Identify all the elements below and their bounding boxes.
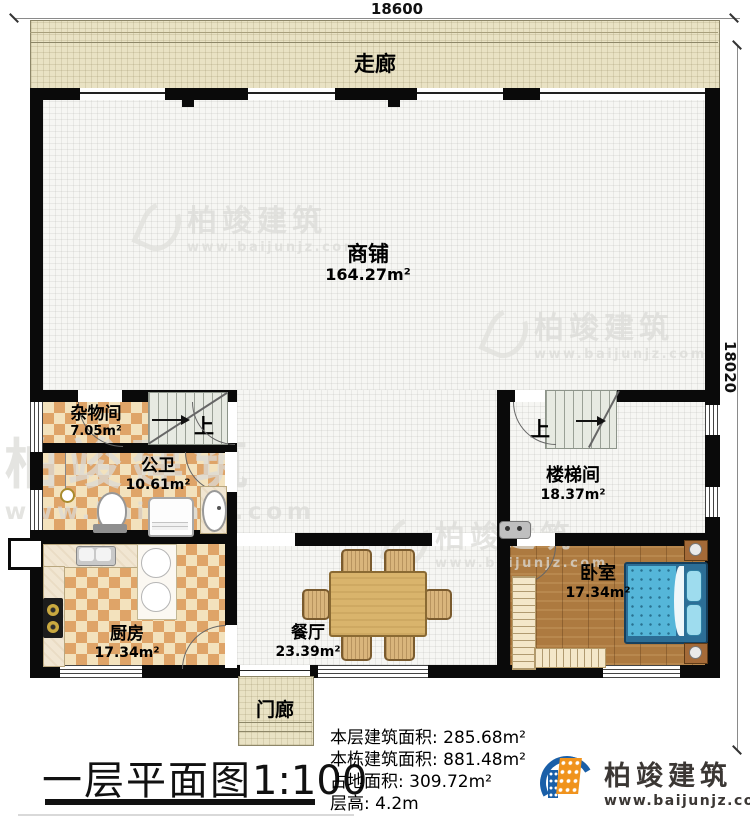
dining-area: 23.39m² xyxy=(248,644,368,660)
storefront-opening xyxy=(248,88,335,100)
stove-burner xyxy=(47,604,59,616)
room-label-storage: 杂物间 7.05m² xyxy=(38,405,154,439)
plan-title-text: 一层平面图 xyxy=(42,748,252,806)
dining-name: 餐厅 xyxy=(248,624,368,644)
washing-machine-icon xyxy=(148,497,194,537)
shop-floor-lower xyxy=(237,390,497,533)
lamp-icon xyxy=(60,488,75,503)
storefront-opening xyxy=(80,88,165,100)
window xyxy=(705,487,720,517)
water-heater-icon xyxy=(499,521,531,539)
room-label-dining: 餐厅 23.39m² xyxy=(248,624,368,660)
room-label-stairwell: 楼梯间 18.37m² xyxy=(513,466,633,503)
stats-line: 本层建筑面积: 285.68m² xyxy=(330,727,526,749)
room-label-porch: 门廊 xyxy=(233,700,317,722)
wall-shop-dining xyxy=(295,533,432,546)
faucet-dot xyxy=(217,506,221,510)
watermark-logo-icon xyxy=(0,416,8,531)
building-stats: 本层建筑面积: 285.68m² 本栋建筑面积: 881.48m² 占地面积: … xyxy=(330,727,526,815)
chimney xyxy=(8,538,44,570)
wall-stairwell-top xyxy=(497,390,515,402)
room-label-bathroom: 公卫 10.61m² xyxy=(98,457,218,493)
bathroom-area: 10.61m² xyxy=(98,477,218,493)
round-basin xyxy=(141,548,171,578)
kitchen-door-opening xyxy=(225,625,237,668)
brand-name: 柏竣建筑 xyxy=(604,754,750,793)
shop-name: 商铺 xyxy=(298,242,438,266)
storage-door-opening xyxy=(78,390,122,402)
room-label-bedroom: 卧室 17.34m² xyxy=(538,564,658,601)
window xyxy=(705,405,720,435)
storage-area: 7.05m² xyxy=(38,425,154,440)
kitchen-name: 厨房 xyxy=(67,625,187,645)
title-underline-thick xyxy=(45,799,315,805)
stats-line: 占地面积: 309.72m² xyxy=(330,771,526,793)
storefront-opening xyxy=(417,88,503,100)
window xyxy=(60,665,142,678)
pillow-icon xyxy=(686,604,702,636)
stair-direction-arrow xyxy=(152,419,182,421)
wardrobe-icon xyxy=(512,576,536,670)
dimension-line-top xyxy=(14,18,740,19)
porch-door-line xyxy=(240,670,310,671)
corridor-inner-line xyxy=(30,42,718,43)
kitchen-sink-basin xyxy=(79,548,94,561)
stairwell-name: 楼梯间 xyxy=(513,466,633,487)
bathroom-name: 公卫 xyxy=(98,457,218,477)
corridor-name: 走廊 xyxy=(340,52,410,76)
dimension-width-label: 18600 xyxy=(352,0,442,18)
kitchen-sink-basin xyxy=(96,548,111,561)
washing-machine-panel xyxy=(152,522,188,530)
chair-icon xyxy=(302,589,330,620)
nightstand-lamp xyxy=(689,543,702,556)
wall-left xyxy=(30,88,43,678)
porch-step-line xyxy=(238,731,312,732)
plan-title: 一层平面图1:100 xyxy=(42,748,367,806)
storage-name: 杂物间 xyxy=(38,405,154,425)
stove-burner xyxy=(47,621,59,633)
corridor-inner-line xyxy=(30,32,718,33)
stair-direction-arrowhead xyxy=(181,415,190,425)
dimension-line-right xyxy=(737,45,738,750)
wardrobe-icon xyxy=(534,648,606,668)
wall-tab xyxy=(388,100,400,107)
window xyxy=(603,665,680,678)
brand-url: www.baijunjz.com xyxy=(604,793,750,809)
room-label-corridor: 走廊 xyxy=(340,52,410,76)
lamp-cord xyxy=(65,453,66,489)
sink-icon xyxy=(202,490,227,532)
stair-direction-arrow xyxy=(576,420,598,422)
stats-line: 层高: 4.2m xyxy=(330,793,526,815)
round-basin xyxy=(141,582,171,612)
wall-tab xyxy=(182,100,194,107)
storefront-glass-line xyxy=(417,92,503,94)
pillow-icon xyxy=(686,570,702,602)
stats-line: 本栋建筑面积: 881.48m² xyxy=(330,749,526,771)
window xyxy=(318,665,428,678)
shop-area: 164.27m² xyxy=(298,266,438,284)
bedroom-name: 卧室 xyxy=(538,564,658,585)
dimension-height-label: 18020 xyxy=(721,337,739,397)
toilet-tank xyxy=(93,524,127,533)
brand-logo: 柏竣建筑 www.baijunjz.com xyxy=(538,752,750,810)
logo-building-shape xyxy=(556,758,582,794)
porch-step-line xyxy=(238,722,312,723)
kitchen-area: 17.34m² xyxy=(67,645,187,661)
floor-plan-canvas: 18600 18020 走廊 柏竣建筑 www.baijunjz.com 柏竣建… xyxy=(0,0,750,829)
water-heater-knob xyxy=(505,526,510,531)
title-underline-thin xyxy=(18,814,354,816)
storefront-glass-line xyxy=(248,92,335,94)
storefront-opening xyxy=(540,88,705,100)
storefront-glass-line xyxy=(80,92,165,94)
water-heater-knob xyxy=(517,526,522,531)
storefront-glass-line xyxy=(540,92,705,94)
room-label-kitchen: 厨房 17.34m² xyxy=(67,625,187,661)
wall-stairwell-top xyxy=(615,390,720,402)
brand-logo-icon xyxy=(538,752,596,810)
bedroom-area: 17.34m² xyxy=(538,585,658,601)
room-label-shop: 商铺 164.27m² xyxy=(298,242,438,285)
stair-direction-arrowhead xyxy=(597,416,606,426)
porch-name: 门廊 xyxy=(233,700,317,722)
nightstand-lamp xyxy=(689,646,702,659)
bed-sheet-fold xyxy=(674,566,684,636)
chair-icon xyxy=(424,589,452,620)
stairwell-area: 18.37m² xyxy=(513,487,633,503)
